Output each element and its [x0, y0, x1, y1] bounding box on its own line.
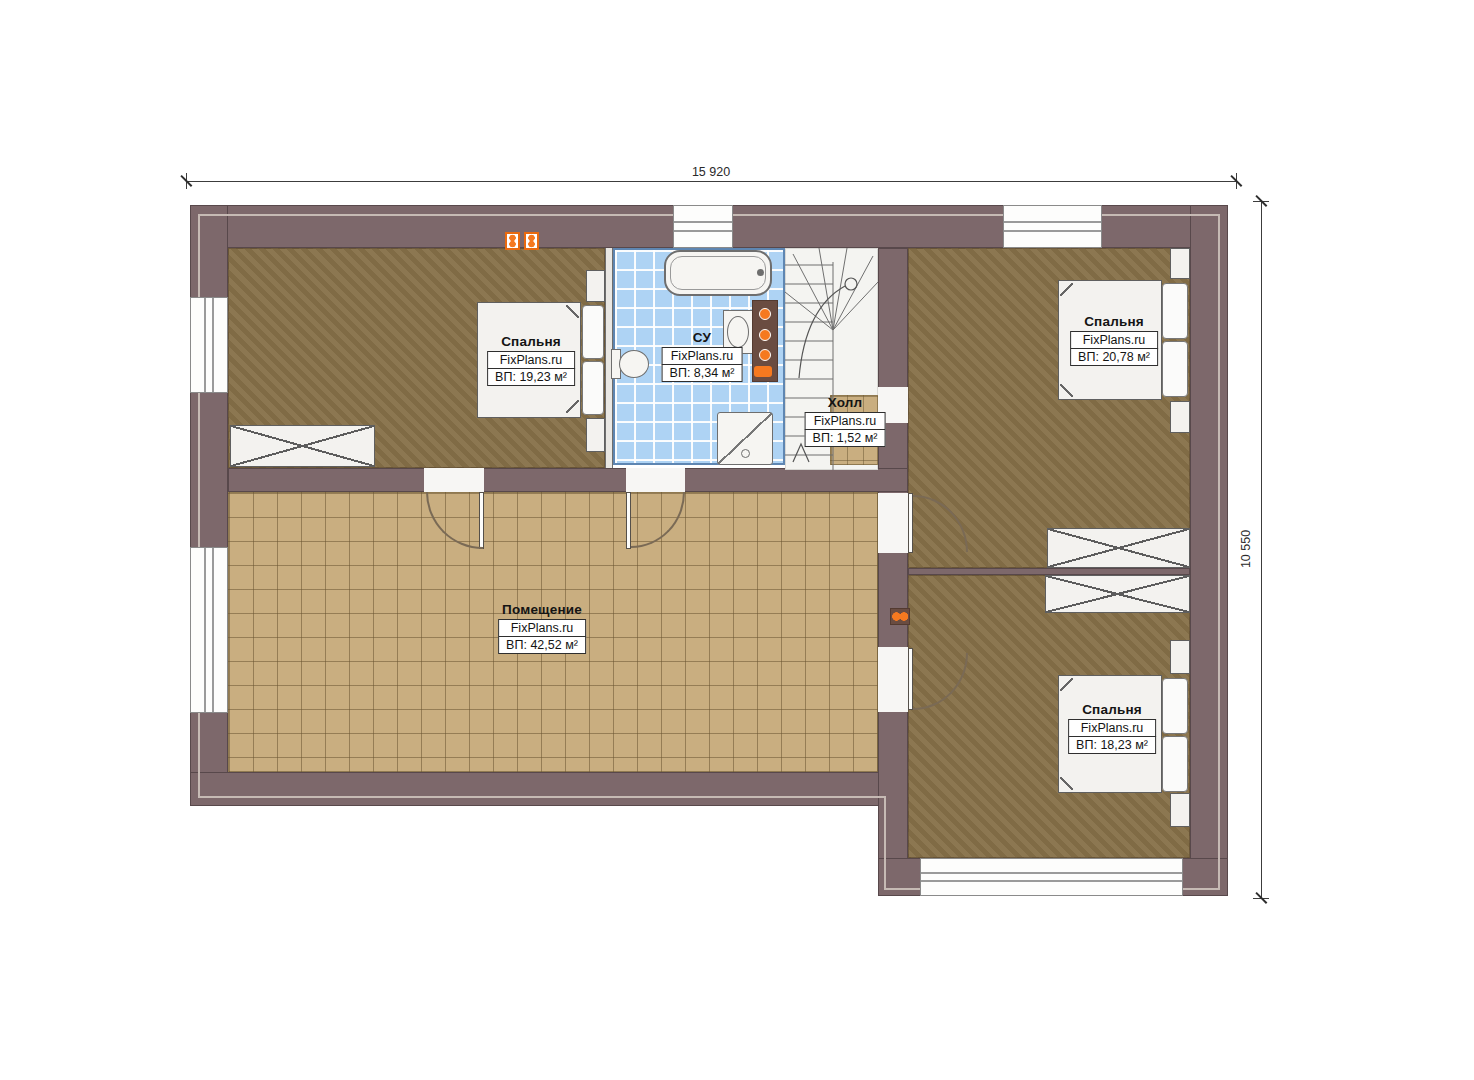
- nightstand: [1170, 640, 1190, 674]
- bed-corner-fold: [1060, 777, 1073, 790]
- room-area: ВП: 18,23 м²: [1068, 736, 1156, 754]
- room-label-main-room: Помещение FixPlans.ru ВП: 42,52 м²: [498, 602, 586, 654]
- wall-inset-line: [1218, 214, 1220, 890]
- window-top-2: [1003, 205, 1102, 248]
- door-opening-bedroom-tr: [878, 493, 908, 553]
- door-opening-bathroom: [626, 468, 685, 492]
- room-area: ВП: 42,52 м²: [498, 636, 586, 654]
- shower-drain: [741, 449, 750, 458]
- bed-corner-fold: [566, 305, 579, 318]
- wall-bottom-main: [190, 772, 908, 806]
- wall-partition-horizontal: [228, 468, 908, 492]
- floor-plan-canvas: Спальня FixPlans.ru ВП: 19,23 м² СУ FixP…: [0, 0, 1474, 1080]
- room-label-bedroom-tl: Спальня FixPlans.ru ВП: 19,23 м²: [487, 334, 575, 386]
- wall-right: [1190, 205, 1228, 896]
- nightstand: [1170, 401, 1190, 433]
- room-brand: FixPlans.ru: [805, 412, 886, 430]
- bed-corner-fold: [566, 400, 579, 413]
- wall-inset-line: [884, 796, 886, 890]
- room-brand: FixPlans.ru: [498, 619, 586, 637]
- radiator-icon: [890, 608, 910, 625]
- room-title: Спальня: [487, 334, 575, 349]
- room-title: Спальня: [1068, 702, 1156, 717]
- towel-warmer-dot: [759, 349, 771, 361]
- room-brand: FixPlans.ru: [1068, 719, 1156, 737]
- bathtub-faucet: [757, 269, 764, 276]
- room-label-bedroom-br: Спальня FixPlans.ru ВП: 18,23 м²: [1068, 702, 1156, 754]
- room-title: Спальня: [1070, 314, 1158, 329]
- nightstand: [1170, 793, 1190, 827]
- wardrobe: [230, 425, 375, 467]
- wall-partition-wing: [908, 568, 1190, 575]
- pillow: [1162, 341, 1188, 397]
- room-brand: FixPlans.ru: [1070, 331, 1158, 349]
- pillow: [1162, 283, 1188, 339]
- pillow: [582, 305, 604, 359]
- radiator-icon: [524, 232, 539, 250]
- room-label-bathroom: СУ FixPlans.ru ВП: 8,34 м²: [662, 330, 743, 382]
- room-title: СУ: [662, 330, 743, 345]
- window-left-bedroom: [190, 297, 228, 393]
- radiator-icon: [505, 232, 520, 250]
- pillow: [582, 361, 604, 415]
- bed-corner-fold: [1060, 384, 1073, 397]
- towel-warmer-dot: [759, 329, 771, 341]
- window-left-main-room: [190, 547, 228, 713]
- towel-warmer-dot: [759, 308, 771, 320]
- nightstand: [1170, 248, 1190, 279]
- toilet: [619, 350, 649, 378]
- room-area: ВП: 1,52 м²: [805, 429, 886, 447]
- room-label-hall: Холл FixPlans.ru ВП: 1,52 м²: [805, 395, 886, 447]
- room-brand: FixPlans.ru: [662, 347, 743, 365]
- dimension-width-label: 15 920: [692, 165, 730, 179]
- nightstand: [586, 270, 605, 302]
- pillow: [1162, 678, 1188, 734]
- wardrobe: [1047, 528, 1190, 568]
- wall-wing-left: [878, 248, 908, 896]
- room-area: ВП: 19,23 м²: [487, 368, 575, 386]
- room-area: ВП: 8,34 м²: [662, 364, 743, 382]
- towel-warmer-valve: [754, 366, 772, 377]
- window-top-1: [673, 205, 733, 248]
- door-opening-bedroom-tl: [424, 468, 484, 492]
- room-title: Помещение: [498, 602, 586, 617]
- nightstand: [586, 418, 605, 452]
- door-opening-bedroom-br: [878, 647, 908, 712]
- bed-corner-fold: [1060, 283, 1073, 296]
- room-area: ВП: 20,78 м²: [1070, 348, 1158, 366]
- dimension-height-label: 10 550: [1239, 530, 1253, 568]
- window-wing-bottom: [920, 858, 1183, 896]
- bed-corner-fold: [1060, 678, 1073, 691]
- wall-inset-line: [198, 796, 886, 798]
- wardrobe: [1045, 575, 1190, 613]
- pillow: [1162, 736, 1188, 792]
- room-brand: FixPlans.ru: [487, 351, 575, 369]
- room-title: Холл: [805, 395, 886, 410]
- room-label-bedroom-tr: Спальня FixPlans.ru ВП: 20,78 м²: [1070, 314, 1158, 366]
- wall-left: [190, 205, 228, 806]
- bathtub: [664, 250, 772, 296]
